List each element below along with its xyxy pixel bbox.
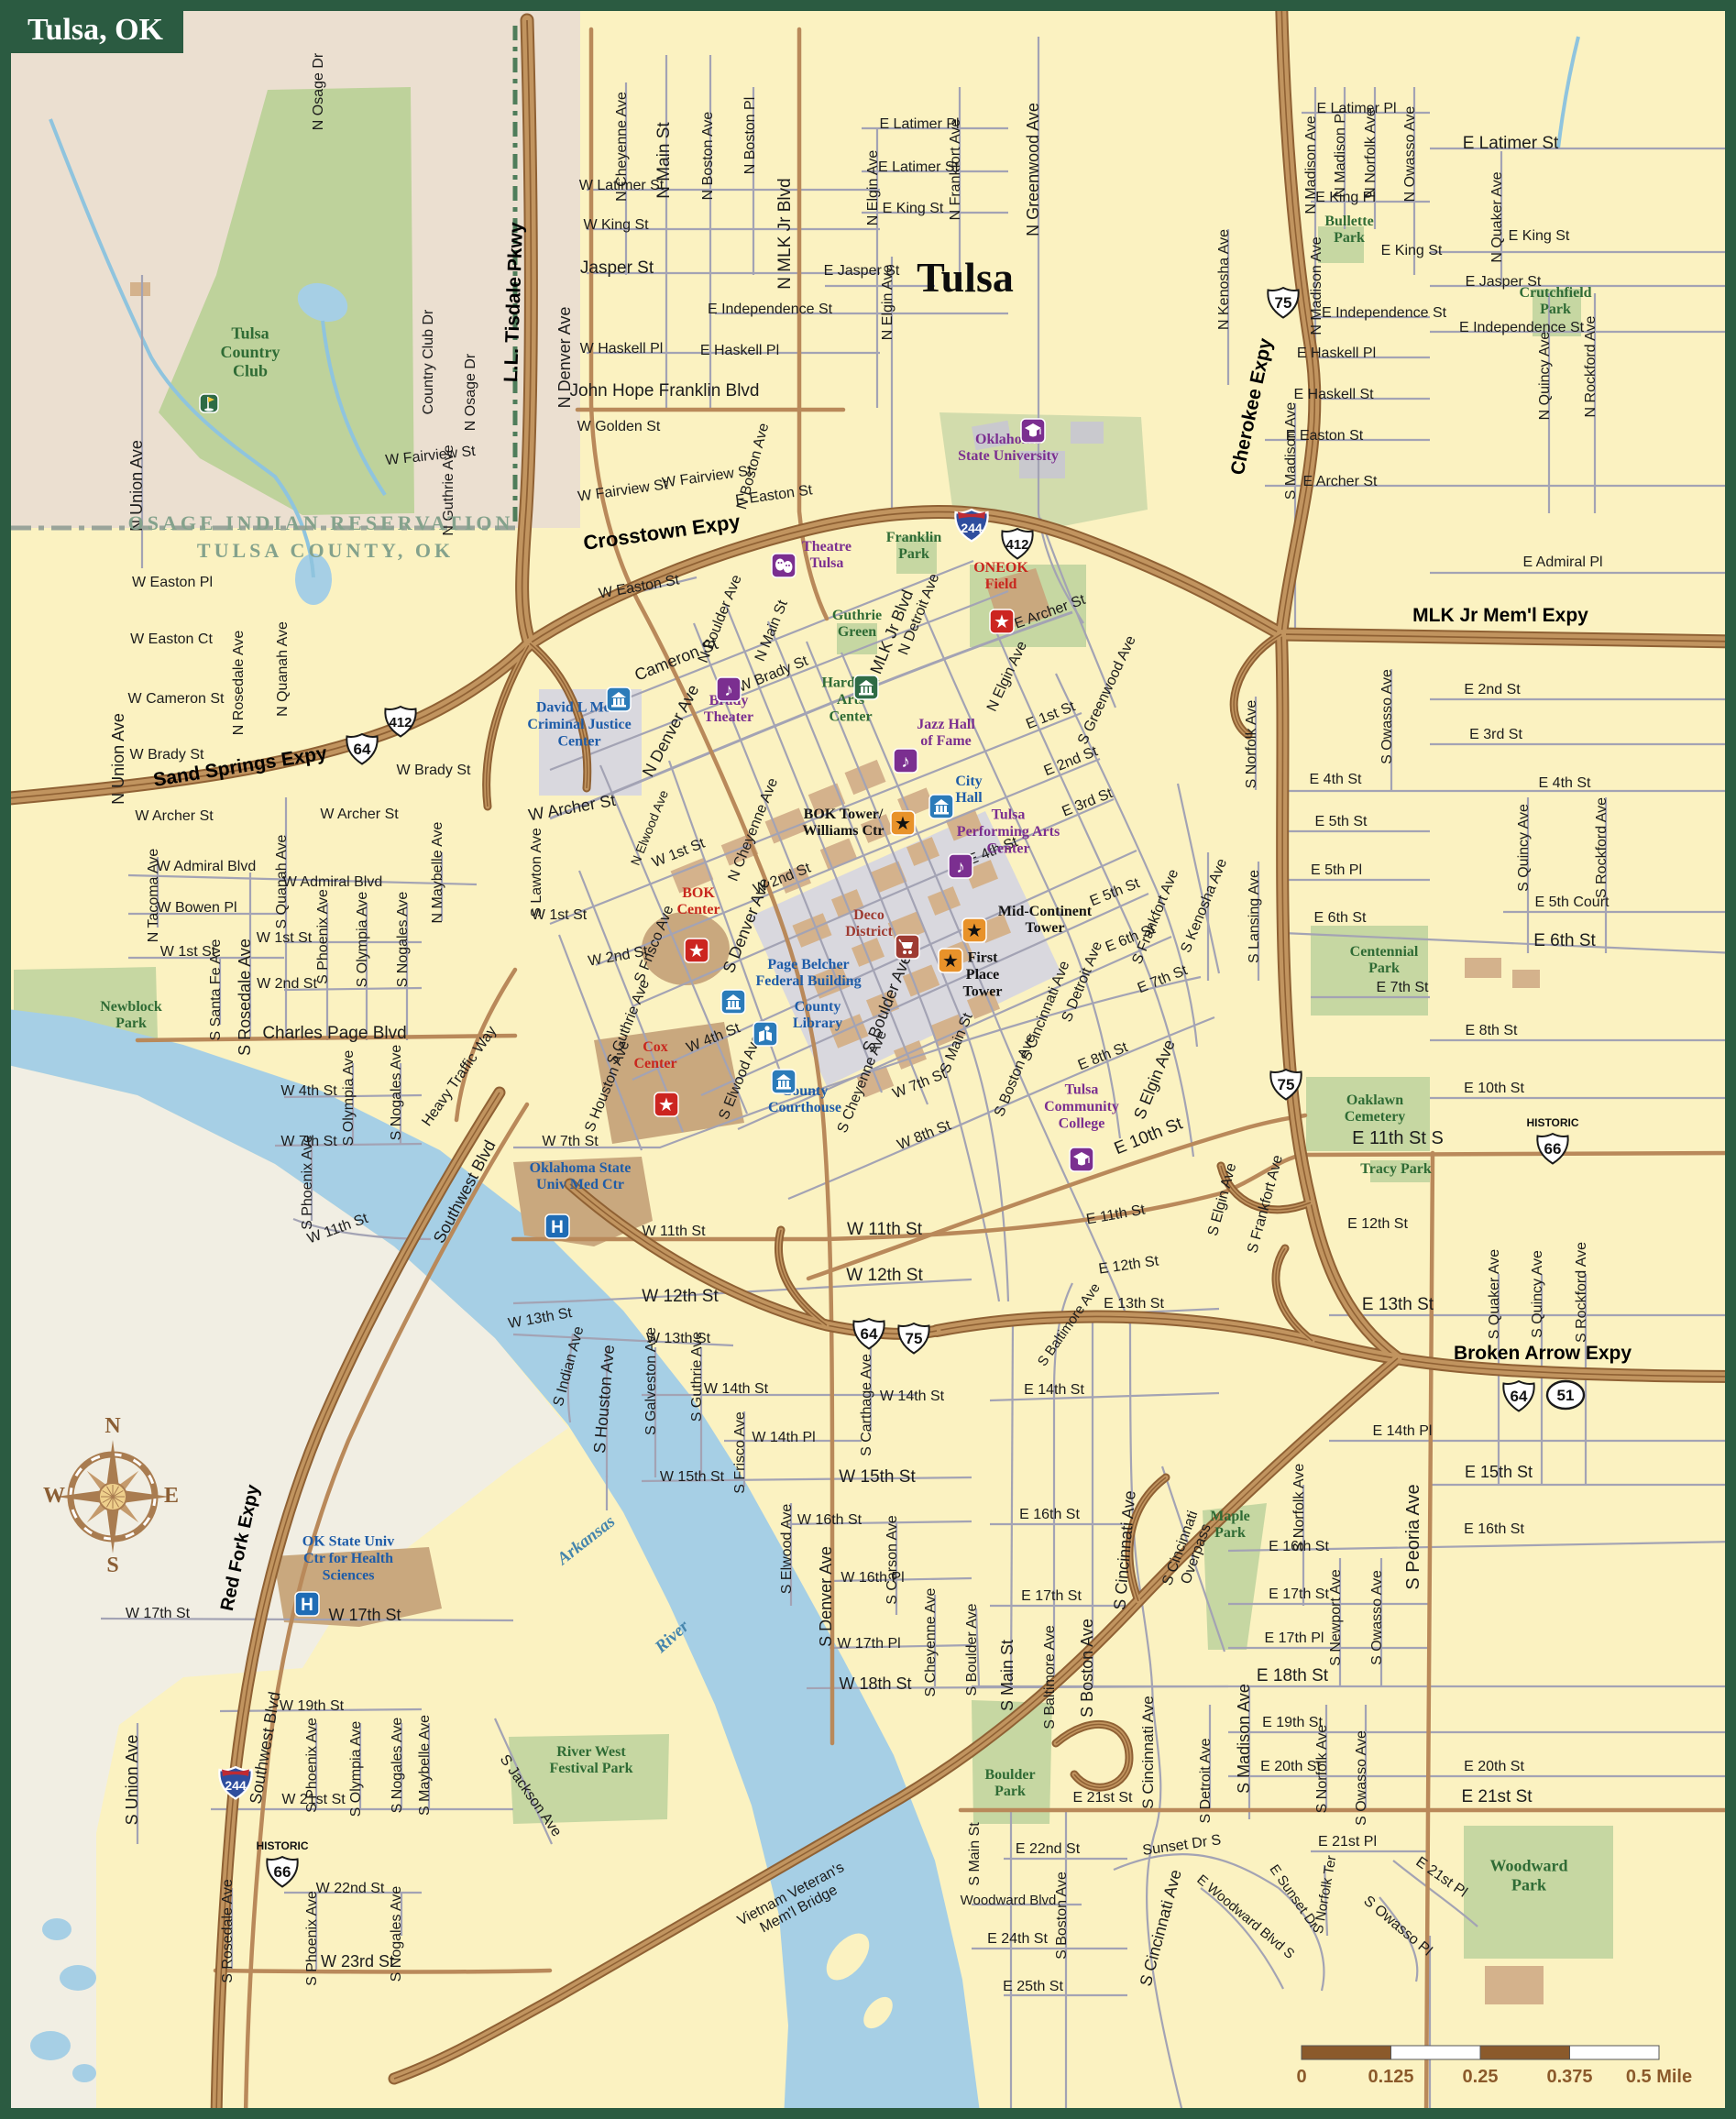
star-icon: ★ (939, 949, 962, 972)
street-label: W 19th St (280, 1698, 345, 1714)
library-icon (753, 1022, 777, 1046)
street-label: W Archer St (320, 807, 399, 822)
street-label: S Owasso Ave (1354, 1730, 1369, 1826)
building (1485, 1966, 1544, 2004)
street-label: N Maybelle Ave (430, 821, 445, 923)
street-label: E 16th St (1019, 1507, 1080, 1522)
street-label: W Easton Ct (130, 631, 213, 647)
street-label: W 15th St (839, 1467, 916, 1487)
street-label: N Greenwood Ave (1024, 103, 1042, 236)
street-label: S Boston Ave (1078, 1619, 1096, 1718)
street-label: E 7th St (1377, 980, 1429, 995)
street-label: W 14th St (704, 1381, 769, 1397)
street-label: W 12th St (846, 1266, 923, 1285)
street-label: S Cheyenne Ave (923, 1587, 939, 1696)
street-label: E Haskell Pl (1297, 346, 1376, 361)
street-label: E Haskell St (1293, 387, 1374, 402)
street-label: E Archer St (1303, 474, 1378, 489)
street-label: S Rockford Ave (1594, 797, 1610, 898)
street-label: E 22nd St (1016, 1841, 1081, 1857)
street-label: W 14th Pl (752, 1430, 815, 1445)
street-label: N Cheyenne Ave (614, 92, 630, 202)
street-label: N Boston Ave (700, 112, 716, 201)
street-label: S Quaker Ave (1487, 1249, 1502, 1340)
street-label: S Carthage Ave (859, 1354, 874, 1456)
svg-text:0.5 Mile: 0.5 Mile (1626, 2067, 1692, 2087)
street-label: E 6th St (1314, 910, 1367, 926)
street-label: E 13th St (1362, 1295, 1434, 1314)
street-label: S Newport Ave (1328, 1569, 1344, 1666)
svg-text:64: 64 (1511, 1388, 1528, 1405)
street-label: S Maybelle Ave (417, 1715, 433, 1816)
street-label: S Elwood Ave (779, 1504, 795, 1595)
street-label: Country Club Dr (421, 309, 436, 414)
city-label: Tulsa (917, 254, 1014, 301)
street-label: E 17th Pl (1265, 1630, 1324, 1646)
street-label: E 17th St (1269, 1587, 1329, 1602)
building (1465, 958, 1501, 978)
street-label: S Lawton Ave (529, 828, 544, 917)
street-label: W 18th St (839, 1674, 911, 1693)
svg-text:HISTORIC: HISTORIC (1526, 1116, 1578, 1129)
street-label: N Osage Dr (463, 353, 478, 431)
svg-text:244: 244 (961, 521, 983, 535)
street-label: S Galveston Ave (643, 1327, 659, 1435)
svg-text:75: 75 (1278, 1076, 1295, 1093)
boundary-label: TULSA COUNTY, OK (197, 539, 454, 562)
building (1071, 422, 1104, 444)
street-label: E Independence St (1459, 320, 1585, 335)
street-label: S Olympia Ave (348, 1721, 364, 1817)
svg-text:0: 0 (1296, 2067, 1306, 2087)
svg-text:412: 412 (1005, 537, 1028, 553)
street-label: W 4th St (280, 1083, 337, 1099)
street-label: E 14th Pl (1373, 1423, 1433, 1439)
street-label: N Owasso Ave (1402, 106, 1418, 203)
street-label: S Madison Ave (1283, 402, 1299, 500)
street-label: S Main St (967, 1822, 983, 1886)
street-label: E Admiral Pl (1522, 554, 1602, 570)
street-label: S Olympia Ave (355, 892, 370, 988)
street-label: N Elgin Ave (880, 265, 895, 341)
street-label: S Detroit Ave (1198, 1738, 1214, 1823)
street-label: S Norfolk Ave (1314, 1725, 1330, 1814)
street-label: W 11th St (642, 1224, 706, 1239)
street-label: S Boulder Ave (964, 1603, 980, 1696)
street-label: W Archer St (135, 808, 214, 824)
street-label: E 25th St (1003, 1979, 1063, 1994)
street-label: E King St (883, 201, 944, 216)
svg-text:★: ★ (994, 612, 1010, 632)
star-icon: ★ (962, 918, 986, 942)
street-label: S Madison Ave (1235, 1684, 1253, 1794)
street-label: W 11th St (847, 1220, 923, 1239)
poi-label: Page BelcherFederal Building (755, 957, 861, 989)
street-label: E Latimer St (1463, 134, 1559, 153)
park-label: River WestFestival Park (549, 1744, 632, 1776)
street-label: S Phoenix Ave (300, 1135, 315, 1230)
svg-text:★: ★ (966, 921, 983, 941)
street-label: W 17th St (126, 1606, 191, 1621)
street-label: E 2nd St (1464, 682, 1521, 697)
svg-text:66: 66 (274, 1863, 291, 1881)
street-label: W Bowen Pl (157, 900, 236, 916)
street-label: N Kenosha Ave (1216, 229, 1232, 330)
street-label: E 24th St (987, 1931, 1048, 1947)
street-label: W 14th St (880, 1389, 945, 1404)
map: W Latimer StN Cheyenne AveN Main StN Bos… (0, 0, 1736, 2119)
svg-text:HISTORIC: HISTORIC (256, 1839, 308, 1852)
poi-label: Jazz Hallof Fame (917, 717, 975, 749)
museum-icon (854, 675, 878, 699)
street-label: E 4th St (1539, 775, 1591, 791)
svg-text:W: W (43, 1484, 65, 1508)
street-label: N Quaker Ave (1489, 171, 1505, 262)
poi-label: CountyLibrary (793, 999, 842, 1031)
street-label: E 11th St S (1352, 1128, 1444, 1148)
street-label: S Nogales Ave (390, 1718, 405, 1814)
street-label: E Independence St (708, 302, 833, 317)
street-label: W Brady St (397, 763, 471, 778)
arterial-road (215, 1971, 550, 1972)
street-label: W Brady St (130, 747, 204, 763)
svg-text:0.125: 0.125 (1368, 2067, 1413, 2087)
museum-icon (607, 687, 631, 711)
street-label: W 22nd St (316, 1881, 385, 1896)
svg-text:S: S (106, 1554, 118, 1577)
street-label: N Boston Pl (742, 97, 758, 174)
map-canvas[interactable]: W Latimer StN Cheyenne AveN Main StN Bos… (0, 0, 1736, 2119)
street-label: S Frisco Ave (732, 1411, 748, 1494)
svg-text:75: 75 (1275, 294, 1292, 312)
street-label: E 16th St (1464, 1521, 1524, 1537)
street-label: S Boston Ave (1054, 1872, 1070, 1960)
street-label: N Osage Dr (311, 52, 326, 130)
street-label: E 13th St (1104, 1296, 1164, 1312)
street-label: S Nogales Ave (389, 1045, 404, 1141)
theater-masks-icon (772, 554, 796, 577)
street-label: W 16th Pl (841, 1570, 904, 1586)
graduation-cap-icon (1070, 1147, 1093, 1171)
svg-text:0.375: 0.375 (1546, 2067, 1592, 2087)
svg-text:75: 75 (906, 1330, 923, 1347)
street-label: S Union Ave (123, 1735, 141, 1826)
street-label: W 15th St (660, 1469, 725, 1485)
street-label: W Admiral Blvd (283, 874, 382, 890)
svg-text:★: ★ (688, 941, 705, 961)
park-label: MaplePark (1210, 1509, 1250, 1541)
street-label: S Phoenix Ave (315, 889, 331, 984)
street-label: E 3rd St (1469, 727, 1522, 742)
street-label: E 21st St (1073, 1790, 1133, 1806)
street-label: N Madison Pl (1333, 110, 1348, 197)
street-label: E 8th St (1466, 1023, 1518, 1038)
street-label: S Carson Ave (884, 1515, 900, 1605)
street-label: N Frankfort Ave (948, 118, 963, 220)
museum-icon (929, 795, 953, 818)
street-label: E Haskell Pl (700, 343, 779, 358)
street-label: W 17th Pl (837, 1636, 900, 1652)
highway-label: Broken Arrow Expy (1454, 1343, 1632, 1364)
svg-text:E: E (164, 1484, 179, 1508)
svg-text:♪: ♪ (724, 681, 733, 700)
svg-text:64: 64 (861, 1325, 878, 1343)
svg-text:H: H (551, 1218, 564, 1237)
street-label: N Norfolk Ave (1363, 108, 1379, 198)
street-label: E 6th St (1533, 931, 1596, 950)
music-note-icon: ♪ (894, 749, 917, 773)
street-label: John Hope Franklin Blvd (570, 381, 760, 401)
street-label: S Phoenix Ave (304, 1891, 320, 1986)
street-label: W 16th St (797, 1512, 863, 1528)
map-title: Tulsa, OK (27, 13, 163, 48)
highway-label: MLK Jr Mem'l Expy (1412, 605, 1588, 626)
star-icon: ★ (654, 1092, 678, 1116)
street-label: N Denver Ave (555, 307, 574, 409)
svg-text:★: ★ (658, 1095, 675, 1115)
area (30, 2031, 71, 2060)
street-label: N Union Ave (109, 713, 127, 805)
golf-flag-icon (200, 394, 218, 412)
street-label: E 21st Pl (1318, 1834, 1377, 1850)
street-label: S Quincy Ave (1530, 1250, 1545, 1338)
street-label: W 1st St (257, 930, 313, 946)
hospital-icon: H (545, 1214, 569, 1238)
street-label: N Quincy Ave (1537, 332, 1553, 421)
star-icon: ★ (685, 939, 709, 962)
street-label: E King St (1509, 228, 1570, 244)
svg-text:H: H (301, 1596, 313, 1615)
street-label: E 20th St (1464, 1759, 1524, 1774)
poi-label: Oklahoma StateUniv Med Ctr (530, 1160, 632, 1192)
area (42, 1918, 71, 1940)
street-label: E King Pl (1315, 190, 1376, 205)
street-label: W Admiral Blvd (157, 859, 256, 874)
hospital-icon: H (295, 1592, 319, 1616)
street-label: N Tacoma Ave (146, 849, 161, 943)
street-label: E 18th St (1257, 1666, 1329, 1685)
street-label: W 12th St (642, 1287, 719, 1306)
shopping-cart-icon (895, 935, 919, 959)
area (72, 2064, 96, 2082)
street-label: E 5th Court (1535, 895, 1610, 910)
street-label: S Rosedale Ave (236, 939, 254, 1056)
street-label: E 21st St (1461, 1787, 1533, 1806)
street-label: E Independence St (1322, 305, 1447, 321)
street-label: E King St (1381, 243, 1443, 258)
street-label: W King St (583, 217, 649, 233)
street-label: S Nogales Ave (395, 892, 411, 988)
park-label: Tracy Park (1360, 1161, 1432, 1177)
street-label: W Golden St (577, 419, 661, 434)
street-label: E Latimer Pl (1316, 101, 1396, 116)
poi-label: CityHall (955, 774, 983, 806)
street-label: W 21st St (281, 1792, 346, 1807)
svg-text:51: 51 (1557, 1387, 1575, 1404)
street-label: S Main St (998, 1640, 1016, 1711)
street-label: Woodward Blvd (961, 1893, 1057, 1908)
street-label: Jasper St (580, 258, 654, 278)
street-label: S Quanah Ave (274, 834, 290, 928)
poi-label: FirstPlaceTower (963, 950, 1003, 1000)
building (130, 282, 150, 296)
music-note-icon: ♪ (717, 677, 741, 701)
star-icon: ★ (990, 609, 1014, 633)
street-label: N Rockford Ave (1583, 315, 1599, 417)
svg-text:244: 244 (225, 1778, 247, 1793)
svg-text:★: ★ (895, 814, 911, 834)
street-label: S Quincy Ave (1516, 804, 1532, 892)
boundary-label: OSAGE INDIAN RESERVATION (128, 511, 514, 534)
street-label: W 17th St (328, 1606, 401, 1624)
svg-text:412: 412 (389, 715, 412, 730)
route-shield: 51 (1547, 1381, 1584, 1409)
poi-label: BOK Tower/Williams Ctr (802, 807, 884, 839)
svg-text:★: ★ (942, 951, 959, 972)
street-label: E 4th St (1310, 772, 1362, 787)
building (1512, 970, 1540, 988)
street-label: W 7th St (542, 1134, 599, 1149)
street-label: E 12th St (1347, 1216, 1408, 1232)
street-label: W Haskell Pl (580, 341, 664, 357)
street-label: S Santa Fe Ave (208, 939, 224, 1040)
street-label: S Norfolk Ave (1291, 1464, 1307, 1553)
street-label: N Quanah Ave (275, 621, 291, 717)
music-note-icon: ♪ (949, 854, 972, 878)
park-label: OaklawnCemetery (1345, 1092, 1406, 1125)
area (60, 1965, 96, 1991)
street-label: S Denver Ave (817, 1546, 835, 1647)
street-label: S Rosedale Ave (220, 1879, 236, 1983)
street-label: E 5th Pl (1311, 862, 1362, 878)
street-label: N Elgin Ave (865, 150, 881, 226)
street-label: S Lansing Ave (1247, 870, 1262, 963)
street-label: W Easton Pl (132, 575, 213, 590)
park-label: GuthrieGreen (832, 608, 882, 640)
street-label: S Guthrie Ave (689, 1332, 705, 1422)
svg-text:64: 64 (354, 741, 371, 758)
svg-text:♪: ♪ (901, 752, 910, 772)
star-icon: ★ (891, 811, 915, 835)
graduation-cap-icon (1021, 419, 1045, 443)
street-label: E 20th St (1260, 1759, 1321, 1774)
street-label: S Owasso Ave (1379, 669, 1395, 764)
street-label: Charles Page Blvd (262, 1024, 406, 1043)
svg-text:0.25: 0.25 (1463, 2067, 1499, 2087)
street-label: E 10th St (1464, 1081, 1524, 1096)
svg-text:66: 66 (1544, 1140, 1562, 1158)
svg-text:♪: ♪ (956, 858, 965, 877)
museum-icon (772, 1070, 796, 1093)
street-label: W 23rd St (321, 1952, 394, 1971)
street-label: S Baltimore Ave (1042, 1625, 1058, 1729)
museum-icon (721, 990, 745, 1014)
street-label: E 14th St (1024, 1382, 1084, 1398)
svg-text:N: N (104, 1414, 121, 1438)
street-label: S Norfolk Ave (1244, 700, 1259, 789)
street-label: W 2nd St (257, 976, 317, 992)
street-label: N Rosedale Ave (231, 631, 247, 736)
street-label: S Rockford Ave (1574, 1242, 1589, 1343)
street-label: W Cameron St (128, 691, 225, 707)
street-label: S Peoria Ave (1403, 1484, 1423, 1589)
street-label: S Olympia Ave (341, 1050, 357, 1147)
street-label: E 15th St (1465, 1463, 1533, 1481)
street-label: S Cincinnati Ave (1139, 1696, 1157, 1808)
street-label: S Owasso Ave (1369, 1570, 1385, 1665)
street-label: E 17th St (1021, 1588, 1082, 1604)
map-title-box: Tulsa, OK (7, 7, 183, 53)
street-label: N Main St (654, 122, 674, 199)
street-label: E 5th St (1315, 814, 1368, 829)
street-label: N MLK Jr Blvd (775, 178, 795, 289)
poi-label: BOKCenter (676, 885, 720, 917)
